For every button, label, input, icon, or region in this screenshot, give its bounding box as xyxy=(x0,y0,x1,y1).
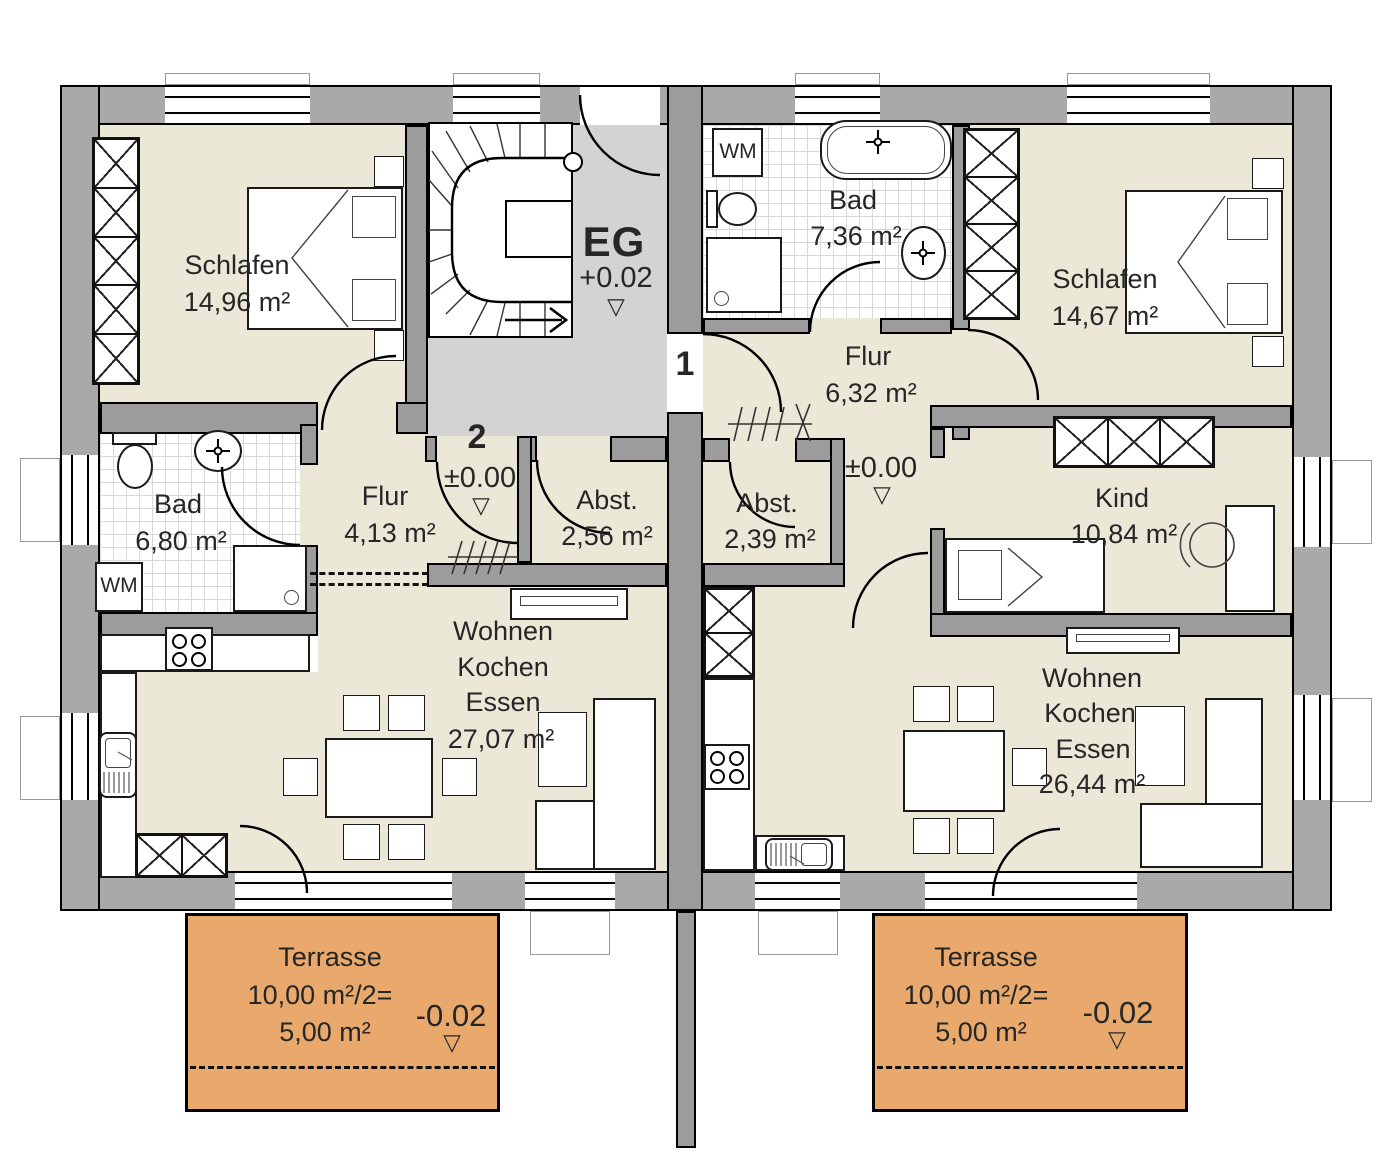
entry-level-marker-left: ▽ xyxy=(472,492,490,518)
window-schlafen-right xyxy=(1067,85,1210,125)
window-schlafen-left xyxy=(165,85,310,125)
sofa-left-bottom xyxy=(535,800,595,870)
window-sill xyxy=(1332,460,1372,544)
room-area-bad-right: 7,36 m² xyxy=(810,221,902,252)
shower-drain xyxy=(714,291,729,306)
window-kitchen-right xyxy=(755,871,840,911)
terrace-right-label: Terrasse xyxy=(934,942,1038,973)
window-kitchen-left xyxy=(60,713,100,800)
chair xyxy=(343,695,380,731)
burner xyxy=(710,769,725,784)
sink-bath-left xyxy=(194,430,242,472)
toilet-left xyxy=(117,444,153,489)
window-sill xyxy=(1067,73,1210,85)
wall-bath-right-south-a xyxy=(703,318,810,334)
kitchen-sink-basin xyxy=(801,843,827,866)
wardrobe-cell xyxy=(94,334,138,383)
wall-abst-right-south xyxy=(703,563,845,587)
chair xyxy=(913,686,950,722)
wardrobe-cell xyxy=(94,237,138,286)
stove-burners xyxy=(706,747,748,787)
window-sill xyxy=(1332,698,1372,802)
window-sill xyxy=(453,73,540,85)
room-label-bad-right: Bad xyxy=(829,185,877,216)
cabinet-cell xyxy=(705,589,753,633)
terrace-left-area: 5,00 m² xyxy=(279,1017,371,1048)
chair xyxy=(343,824,380,860)
room-area-schlafen-left: 14,96 m² xyxy=(184,287,291,318)
fridge-cabinet-right xyxy=(703,587,755,678)
room-label-flur-right: Flur xyxy=(845,341,892,372)
wall-bath-left-east-a xyxy=(300,424,318,465)
wardrobe-cell xyxy=(965,130,1018,177)
terrace-right-level-marker: ▽ xyxy=(1108,1026,1126,1052)
stair-landing xyxy=(505,200,573,258)
wall-abst-right-north-a xyxy=(703,438,730,462)
wall-abst-left-west xyxy=(517,436,532,563)
window-bath-right xyxy=(795,85,880,125)
room-label-wohnen-right-1: Wohnen xyxy=(1042,663,1142,694)
nightstand xyxy=(374,330,404,361)
shower-drain xyxy=(284,590,299,605)
room-label-schlafen-left: Schlafen xyxy=(184,250,289,281)
terrace-left-dashed-line xyxy=(190,1066,495,1069)
nightstand xyxy=(374,156,404,187)
wardrobe-cell xyxy=(94,139,138,188)
wardrobe-cell xyxy=(965,177,1018,224)
window-kind xyxy=(1292,457,1332,547)
burner xyxy=(172,652,187,667)
toilet-tank-right xyxy=(706,190,718,228)
room-area-wohnen-left: 27,07 m² xyxy=(448,724,555,755)
cabinet-cell xyxy=(182,835,227,876)
floor-label: EG xyxy=(583,218,646,266)
stove-burners xyxy=(168,630,210,668)
window-sill xyxy=(530,911,610,955)
burner xyxy=(191,634,206,649)
kitchen-sink-basin xyxy=(105,738,131,768)
wall-schlafen-left-south-b xyxy=(396,402,428,434)
open-passage-dashed xyxy=(310,572,428,586)
cabinet-cell xyxy=(705,633,753,677)
pillow xyxy=(352,279,396,321)
window-sill xyxy=(20,716,60,800)
window-living-right xyxy=(1292,695,1332,800)
chair xyxy=(442,758,477,796)
chair xyxy=(283,758,318,796)
wardrobe-kind xyxy=(1053,416,1215,468)
wall-stair-schlafen xyxy=(405,125,428,434)
window-sill xyxy=(795,73,880,85)
burner xyxy=(172,634,187,649)
room-label-abst-left: Abst. xyxy=(576,485,638,516)
stair-level: +0.02 xyxy=(579,262,652,295)
wardrobe-cell xyxy=(1108,418,1161,466)
window-bath-left xyxy=(60,455,100,545)
room-label-wohnen-right-2: Kochen xyxy=(1044,698,1136,729)
floor-plan: Schlafen 14,96 m² EG +0.02 ▽ 2 1 Bad 6,8… xyxy=(0,0,1393,1162)
pillow xyxy=(958,550,1002,600)
wall-bath-right-south-b xyxy=(880,318,952,334)
cabinet-cell xyxy=(137,835,182,876)
room-area-abst-left: 2,56 m² xyxy=(561,521,653,552)
toilet-right xyxy=(718,192,757,226)
burner xyxy=(729,751,744,766)
chair xyxy=(388,695,425,731)
sideboard-inner xyxy=(1076,634,1170,642)
pillow xyxy=(352,196,396,238)
terrace-left-label: Terrasse xyxy=(278,942,382,973)
wardrobe-cell xyxy=(94,188,138,237)
wardrobe-cell xyxy=(1160,418,1213,466)
room-area-flur-right: 6,32 m² xyxy=(825,378,917,409)
bathtub-inner xyxy=(827,126,945,174)
sofa-left-vertical xyxy=(593,698,656,870)
wall-divider-lower xyxy=(667,412,703,911)
unit-door-number-1: 1 xyxy=(676,345,695,384)
room-area-abst-right: 2,39 m² xyxy=(724,524,816,555)
wall-hall-south-a xyxy=(425,436,437,462)
wm-label-right: WM xyxy=(719,140,756,164)
window-living-left xyxy=(525,871,615,911)
room-label-abst-right: Abst. xyxy=(736,488,798,519)
window-stairwell xyxy=(453,85,540,125)
room-label-wohnen-left-3: Essen xyxy=(465,687,540,718)
sideboard-inner xyxy=(520,596,618,606)
wardrobe-cell xyxy=(1055,418,1108,466)
wardrobe-cell xyxy=(965,271,1018,318)
wardrobe-schlafen-right xyxy=(963,128,1020,320)
room-area-kind: 10,84 m² xyxy=(1071,519,1178,550)
room-area-wohnen-right: 26,44 m² xyxy=(1039,769,1146,800)
room-label-kind: Kind xyxy=(1095,483,1149,514)
dining-table-right xyxy=(903,730,1005,812)
wall-abst-left-south xyxy=(427,563,667,587)
room-label-bad-left: Bad xyxy=(154,489,202,520)
room-label-flur-left: Flur xyxy=(362,481,409,512)
chair xyxy=(388,824,425,860)
room-label-wohnen-left-1: Wohnen xyxy=(453,616,553,647)
wall-schlafen-left-south-a xyxy=(100,402,318,434)
terrace-door-right xyxy=(925,871,1137,911)
wardrobe-cell xyxy=(965,224,1018,271)
window-sill xyxy=(20,458,60,542)
chair xyxy=(957,818,994,854)
wall-divider-upper xyxy=(667,85,703,334)
pillow xyxy=(1227,283,1268,325)
wm-label-left: WM xyxy=(100,574,137,598)
room-area-schlafen-right: 14,67 m² xyxy=(1052,301,1159,332)
wall-kind-west-a xyxy=(930,428,945,458)
dining-table-left xyxy=(325,738,433,818)
entry-level-left: ±0.00 xyxy=(444,462,516,495)
burner xyxy=(729,769,744,784)
chair xyxy=(913,818,950,854)
burner xyxy=(191,652,206,667)
room-area-flur-left: 4,13 m² xyxy=(344,518,436,549)
nightstand xyxy=(1252,158,1284,189)
room-label-wohnen-right-3: Essen xyxy=(1055,734,1130,765)
terrace-right-dashed-line xyxy=(877,1066,1183,1069)
terrace-divider-wall xyxy=(676,911,696,1148)
burner xyxy=(710,751,725,766)
room-label-wohnen-left-2: Kochen xyxy=(457,652,549,683)
chair xyxy=(957,686,994,722)
terrace-left-calc: 10,00 m²/2= xyxy=(248,980,393,1011)
sink-bath-right xyxy=(901,226,946,280)
unit-door-number-2: 2 xyxy=(468,418,487,457)
wardrobe-cell xyxy=(94,285,138,334)
hall-level-marker-right: ▽ xyxy=(873,481,891,507)
terrace-right-area: 5,00 m² xyxy=(935,1017,1027,1048)
window-sill xyxy=(165,73,310,85)
desk-kind xyxy=(1225,505,1275,612)
sofa-right-bottom xyxy=(1140,803,1263,868)
pillow xyxy=(1227,198,1268,240)
terrace-left-level-marker: ▽ xyxy=(443,1029,461,1055)
stair-level-marker: ▽ xyxy=(607,293,625,319)
wall-hall-south-c xyxy=(610,436,667,462)
terrace-door-left xyxy=(235,871,452,911)
cabinet-living-left xyxy=(135,833,228,878)
room-area-bad-left: 6,80 m² xyxy=(135,526,227,557)
wardrobe-schlafen-left xyxy=(92,137,140,385)
entrance-opening xyxy=(580,85,660,125)
window-sill xyxy=(758,911,838,955)
terrace-right-calc: 10,00 m²/2= xyxy=(904,980,1049,1011)
room-label-schlafen-right: Schlafen xyxy=(1052,264,1157,295)
nightstand xyxy=(1252,336,1284,367)
